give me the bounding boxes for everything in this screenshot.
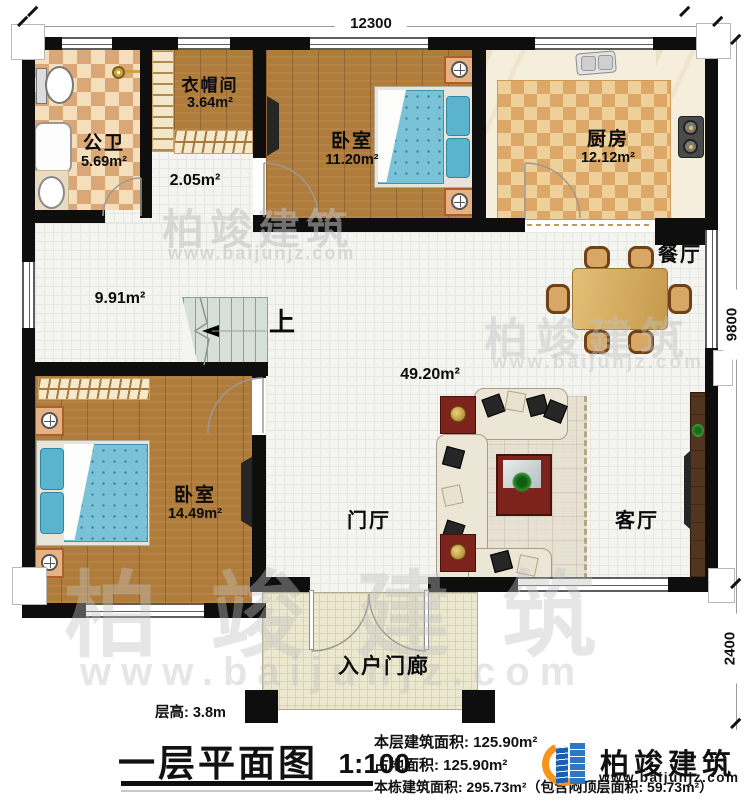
stat-floor-area: 本层建筑面积: 125.90m² <box>374 731 537 752</box>
tick-mark <box>679 6 690 17</box>
wall-segment <box>452 218 525 232</box>
room-label-bathroom: 公卫 5.69m² <box>81 133 127 171</box>
wall-segment <box>22 37 35 262</box>
wash-basin-cabinet <box>34 122 72 174</box>
tv-cabinet <box>690 392 706 578</box>
watermark-site: www.baijunjz.com <box>80 650 585 695</box>
watermark-site: www.baijunjz.com <box>168 243 355 264</box>
sink-basin <box>598 55 613 70</box>
dimension-right-lower: 2400 <box>722 614 739 684</box>
wall-segment <box>252 362 266 378</box>
wall-segment <box>150 362 268 376</box>
sink-basin <box>581 56 596 71</box>
plant-icon <box>692 424 704 437</box>
shower-arm <box>125 70 140 73</box>
floor-height-note: 层高: 3.8m <box>155 701 226 722</box>
window <box>62 37 112 50</box>
room-label-bedroom1: 卧室 11.20m² <box>325 131 378 169</box>
window <box>705 230 718 348</box>
dining-chair <box>628 246 654 270</box>
grid-marker-box <box>696 23 731 59</box>
wall-segment <box>140 50 152 218</box>
room-label-porch: 入户门廊 <box>338 655 430 679</box>
grid-marker-box <box>11 24 45 60</box>
wall-segment <box>22 210 105 223</box>
tv-bedroom1 <box>267 96 279 156</box>
dining-chair <box>584 246 610 270</box>
room-label-bedroom2: 卧室 14.49m² <box>168 485 222 523</box>
tick-mark <box>27 6 38 17</box>
watermark-site: www.baijunjz.com <box>492 352 704 374</box>
logo-building <box>570 742 585 784</box>
brand-logo-icon <box>540 737 596 793</box>
wardrobe-hanging-rail <box>38 378 150 400</box>
brand-website: www.baijunjz.com <box>599 770 740 785</box>
wall-segment <box>230 37 310 50</box>
lamp-icon <box>41 412 58 429</box>
room-label-kitchen: 厨房 12.12m² <box>581 129 635 167</box>
cloakroom-hanging-rail <box>174 130 253 154</box>
ladder-shelf <box>152 50 174 152</box>
side-table-ornament <box>450 406 466 422</box>
room-label-dining: 餐厅 <box>658 244 702 266</box>
window <box>310 37 428 50</box>
dimension-top: 12300 <box>335 15 407 32</box>
lamp-icon <box>451 61 468 78</box>
room-label-living: 客厅 <box>615 510 659 532</box>
room-label-great-room: 49.20m² <box>400 366 460 384</box>
wall-segment <box>22 362 150 376</box>
wall-segment <box>472 37 486 232</box>
stairs-up-label: 上 <box>269 308 297 337</box>
pillow <box>446 96 470 136</box>
dimension-right-upper: 9800 <box>724 290 741 360</box>
grid-marker-box <box>12 567 47 605</box>
lamp-icon <box>451 193 468 210</box>
burner-icon <box>683 139 698 154</box>
title-underline-thin <box>121 790 373 792</box>
pillow <box>40 492 64 534</box>
shower-fixture-icon <box>112 66 125 79</box>
round-sink <box>38 176 65 209</box>
room-label-cloakroom: 衣帽间 3.64m² <box>182 76 239 111</box>
logo-building <box>556 746 568 783</box>
plan-title-text: 一层平面图 <box>118 743 318 784</box>
floor-plan-canvas: 12300 9800 2400 柏竣建筑 www.baijunjz.com 柏竣… <box>0 0 750 804</box>
window <box>178 37 230 50</box>
stair-break-cut <box>182 297 198 365</box>
burner-icon <box>683 120 698 135</box>
room-label-small-hallway: 2.05m² <box>170 172 221 190</box>
pillow <box>40 448 64 490</box>
window <box>22 262 35 328</box>
wall-segment <box>705 37 718 230</box>
stat-footprint-area: 占地面积: 125.90m² <box>374 754 507 775</box>
plant-icon <box>512 472 532 492</box>
pillow <box>446 138 470 178</box>
stair-direction-arrow <box>202 325 219 337</box>
sofa-cushion <box>441 484 464 507</box>
window <box>535 37 653 50</box>
wall-segment <box>253 37 266 158</box>
tv-living <box>684 450 691 530</box>
toilet-bowl <box>45 66 74 104</box>
wall-segment <box>112 37 178 50</box>
title-underline <box>121 781 373 786</box>
room-label-hallway: 9.91m² <box>95 290 146 308</box>
plan-title: 一层平面图 1:100 <box>118 733 410 787</box>
room-label-foyer: 门厅 <box>347 510 391 532</box>
sofa-cushion <box>504 390 526 412</box>
